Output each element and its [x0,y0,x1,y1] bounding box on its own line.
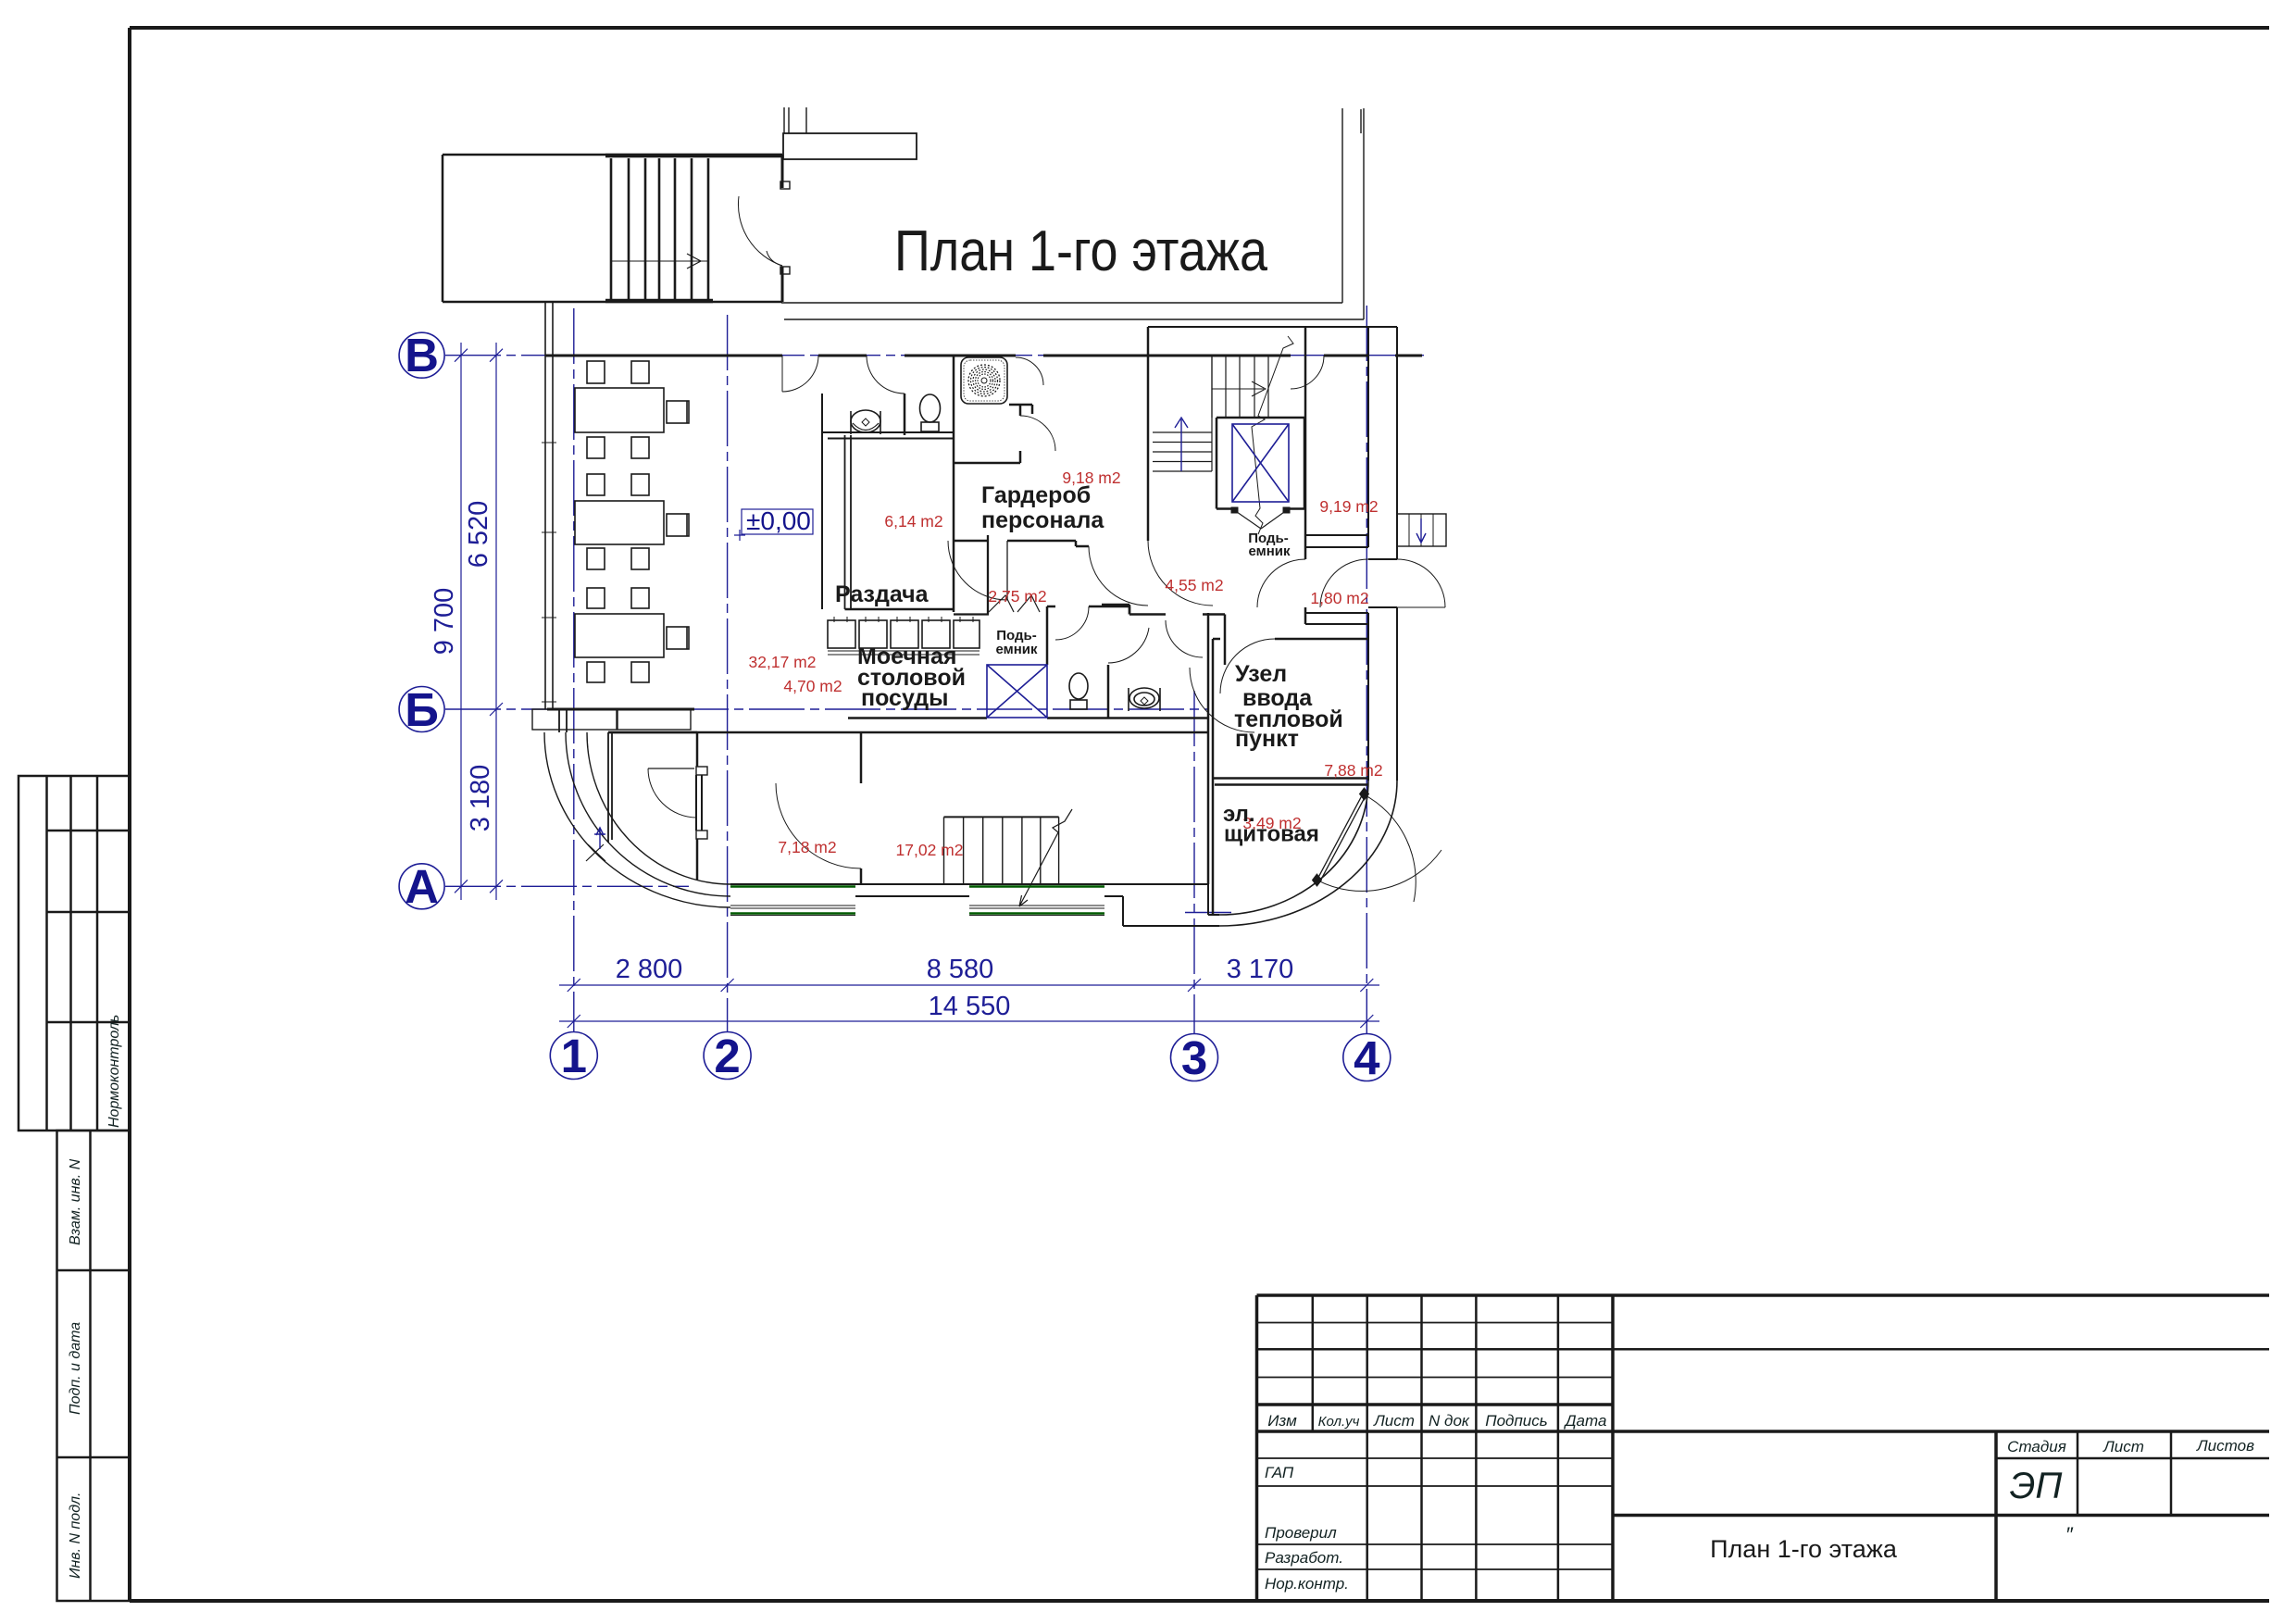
svg-text:В: В [405,329,439,381]
svg-text:Нормоконтроль: Нормоконтроль [106,1015,122,1128]
svg-text:План 1-го этажа: План 1-го этажа [1710,1535,1898,1563]
svg-text:пункт: пункт [1235,726,1299,752]
svg-text:ГАП: ГАП [1265,1464,1294,1481]
svg-text:Нор.контр.: Нор.контр. [1265,1575,1349,1593]
svg-text:Гардероб: Гардероб [981,482,1091,508]
svg-text:9 700: 9 700 [430,588,459,656]
svg-text:Изм: Изм [1267,1412,1297,1430]
svg-text:План 1-го этажа: План 1-го этажа [894,219,1267,283]
svg-text:7,88 m2: 7,88 m2 [1324,761,1382,780]
svg-text:емник: емник [995,642,1038,657]
svg-text:Кол.уч: Кол.уч [1318,1414,1360,1430]
svg-text:Проверил: Проверил [1265,1524,1337,1542]
svg-text:6 520: 6 520 [464,501,493,568]
svg-text:3 170: 3 170 [1227,955,1294,984]
svg-text:4,55 m2: 4,55 m2 [1165,576,1223,594]
svg-text:Раздача: Раздача [835,581,930,607]
svg-text:2 800: 2 800 [616,955,683,984]
svg-text:3 180: 3 180 [466,765,495,832]
svg-text:Дата: Дата [1564,1412,1607,1430]
svg-text:±0,00: ±0,00 [746,506,811,535]
svg-text:4: 4 [1354,1031,1380,1084]
svg-text:″: ″ [2066,1523,2074,1546]
svg-text:7,18 m2: 7,18 m2 [778,838,836,856]
svg-text:N док: N док [1429,1412,1470,1430]
svg-text:Подпись: Подпись [1485,1412,1547,1430]
svg-text:Разработ.: Разработ. [1265,1549,1343,1567]
svg-text:6,14 m2: 6,14 m2 [884,512,942,531]
svg-text:2: 2 [714,1030,740,1082]
svg-text:2,75 m2: 2,75 m2 [988,587,1046,606]
svg-text:Инв. N подл.: Инв. N подл. [68,1492,83,1579]
svg-text:32,17 m2: 32,17 m2 [749,653,817,671]
svg-text:Б: Б [405,683,439,736]
svg-text:Листов: Листов [2196,1437,2254,1455]
svg-text:посуды: посуды [861,685,948,711]
svg-text:3: 3 [1181,1031,1207,1084]
svg-text:Взам. инв. N: Взам. инв. N [68,1158,83,1245]
svg-text:емник: емник [1248,543,1291,559]
svg-text:Лист: Лист [2103,1438,2144,1455]
svg-text:персонала: персонала [981,507,1104,533]
svg-text:4,70 m2: 4,70 m2 [783,677,842,695]
svg-text:щитовая: щитовая [1224,822,1319,847]
svg-text:ЭП: ЭП [2010,1466,2064,1506]
svg-text:8 580: 8 580 [927,955,994,984]
svg-text:А: А [405,860,439,913]
svg-text:Лист: Лист [1373,1412,1415,1430]
svg-text:Подп. и дата: Подп. и дата [68,1322,83,1415]
svg-text:1: 1 [561,1030,587,1082]
svg-text:1,80 m2: 1,80 m2 [1310,589,1368,607]
svg-text:17,02 m2: 17,02 m2 [896,841,964,859]
svg-text:14 550: 14 550 [929,992,1011,1021]
svg-text:Узел: Узел [1235,661,1287,687]
svg-text:9,19 m2: 9,19 m2 [1319,497,1378,516]
svg-text:Стадия: Стадия [2007,1438,2066,1455]
